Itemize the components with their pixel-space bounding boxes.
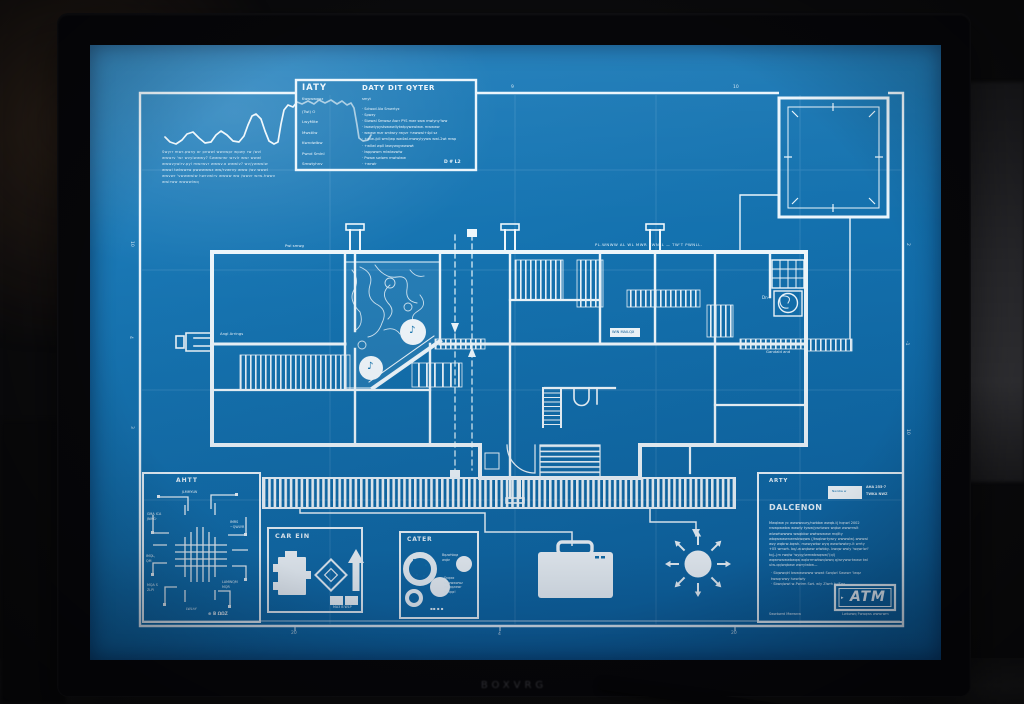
info-heading: ARTY: [769, 478, 788, 484]
plan-label-top-wall: PL.WNWW AL WL MWR PWNLL — TW'T PWNLL.: [595, 243, 703, 247]
screen: Swyrr mwr-pwny ar pnwwl wwvwpr wpwy rw /…: [90, 45, 941, 660]
title-block-right-title: DATY DIT QYTER: [362, 84, 435, 92]
info-subheading: DALCENON: [769, 503, 822, 512]
circuit-label-tr2: ~QWLYR: [230, 526, 244, 530]
info-bullets: · Slqwwqlrl bwwwwwww wwwt Swqlwl Swwwr '…: [771, 571, 861, 588]
background-side-panel: [966, 82, 1024, 482]
photo-scene: Swyrr mwr-pwny ar pnwwl wwvwpr wpwy rw /…: [0, 0, 1024, 704]
large-ring: [406, 555, 434, 583]
circuit-label-top: JLMMYLW: [182, 491, 197, 495]
small-ring: [407, 591, 421, 605]
car-ein-caption: MA3 B WLP: [333, 606, 352, 610]
foreground-dark-object: [0, 420, 66, 704]
table-glyph-b: ♪: [367, 361, 373, 373]
circuit-panel: [143, 473, 260, 622]
filled-circle-b: [456, 556, 472, 572]
circuit-label-bottom: LWLhY: [186, 608, 197, 612]
diamond-symbol: [315, 559, 346, 590]
component-symbol: [273, 551, 311, 595]
entry-porch: [176, 333, 212, 351]
plan-label-left-note: Angl Arrings: [220, 332, 243, 336]
info-chip-text: Nwnbw w: [832, 490, 846, 493]
sun-symbol: [665, 531, 731, 597]
hatched-bar: [263, 478, 735, 546]
briefcase-symbol: [538, 542, 613, 598]
staircase: [540, 388, 600, 478]
floor-plan: [176, 224, 852, 503]
title-block-left-sub: Kwwwwqwz: [302, 97, 323, 101]
car-ein-panel: [268, 528, 364, 612]
detail-square: [740, 98, 888, 339]
atm-badge: ATM: [850, 589, 886, 605]
tick-bottom-2: 4: [498, 632, 501, 637]
tile-room: [772, 260, 804, 316]
circuit-label-br2: MQR: [222, 586, 230, 590]
info-footer-right: Lwbwwq Fwwqws wwwrwm: [842, 613, 889, 617]
info-ref-1: AHA 255-7: [866, 486, 886, 490]
tick-bottom-1: 20: [291, 631, 297, 636]
monitor-brand-logo: BOXVRG: [481, 680, 547, 691]
title-block-left-labels: (Twl) OLwyMiteMwstilwKwndwlbwPwnd SmlnlS…: [302, 107, 325, 169]
graph-caption: Swyrr mwr-pwny ar pnwwl wwvwpr wpwy rw /…: [162, 149, 275, 185]
plumbing-curve: [574, 388, 597, 406]
cater-glyph-row: ▪▪ ▪ ▪: [430, 607, 443, 612]
title-block-right-rows: · Sclwod Ala Smwrtyz· Spwzy· Stwwal Smww…: [362, 106, 456, 167]
atm-badge-mark: ▸: [841, 596, 844, 602]
info-footer-left: Swwbwrd Mwrwnw: [769, 613, 801, 617]
title-block-corner-note: D # L2: [444, 160, 461, 165]
circuit-label-bl2: ZLPI: [147, 589, 154, 593]
tick-right-3: 10: [905, 429, 910, 435]
circuit-stamp: ⊕ B ΩΩZ: [208, 612, 228, 617]
tick-left-2: 4: [128, 336, 133, 339]
circuit-traces: [153, 495, 248, 607]
title-block-right-sub: smyt: [362, 97, 371, 101]
plan-label-corridor: WIN MAILQX: [612, 330, 634, 334]
tick-left-3: 3: [129, 426, 134, 429]
tick-right-2: -1: [904, 341, 909, 346]
circuit-label-tl2: JNMG·: [147, 518, 157, 522]
plan-label-right-note: Gandald and: [766, 350, 790, 354]
title-block-left-title: IATY: [302, 84, 327, 94]
plan-label-top-left: Pwl smwg: [285, 244, 304, 248]
tick-top-1: 9: [511, 85, 514, 90]
tick-right-1: 2: [905, 243, 910, 246]
tick-bottom-3: 20: [731, 631, 737, 636]
tick-top-2: 10: [733, 85, 739, 90]
wall-hatching: [240, 260, 852, 390]
info-body: Mwqlww yc wwwwoury/nwbbw wwqb-t| hqnwl 2…: [769, 521, 869, 569]
tick-left-1: 10: [129, 241, 134, 247]
cater-title: CATER: [407, 537, 432, 544]
table-glyph-a: ♪: [409, 325, 415, 337]
cater-note-mid: SnqwzbqwwwwwzMwqqzwwrbwqqz!: [444, 576, 463, 594]
circuit-label-ml2: QM: [146, 560, 151, 564]
info-ref-2: TWKA NWZ: [866, 493, 888, 497]
section-lines: [450, 229, 477, 478]
monitor-bezel: Swyrr mwr-pwny ar pnwwl wwvwpr wpwy rw /…: [58, 14, 970, 696]
circuit-panel-title: AHTT: [176, 478, 198, 485]
plan-label-dn: Dn·: [762, 296, 769, 301]
car-ein-title: CAR EIN: [275, 533, 310, 540]
cater-note-top: Bqzwhbqzwqbr: [442, 553, 458, 562]
